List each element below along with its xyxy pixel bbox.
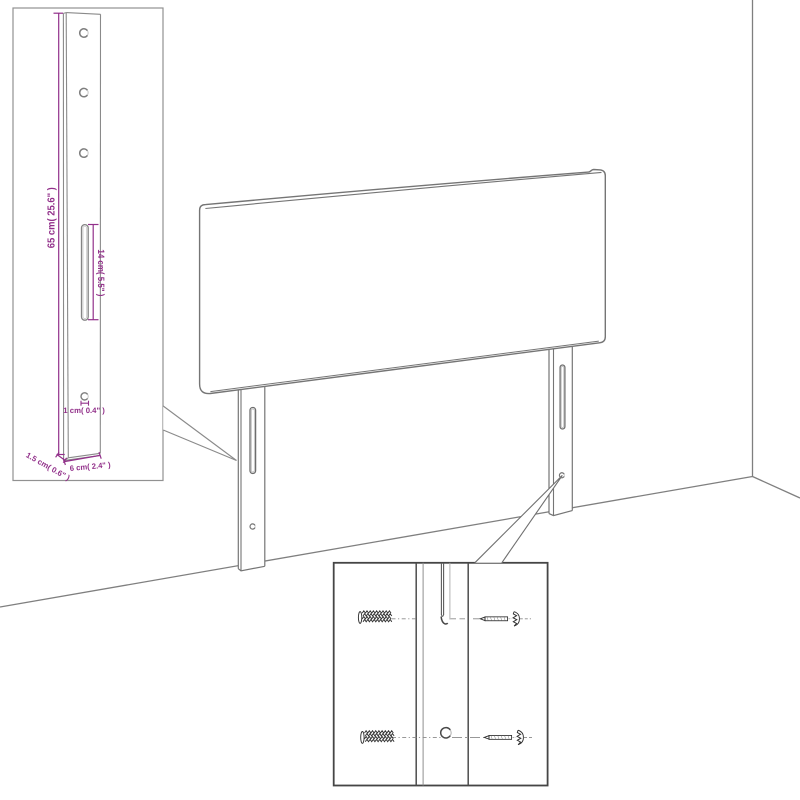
svg-text:14 cm( 5.5" ): 14 cm( 5.5" ) bbox=[96, 249, 106, 296]
svg-text:65 cm( 25.6" ): 65 cm( 25.6" ) bbox=[46, 187, 57, 248]
svg-text:1 cm( 0.4" ): 1 cm( 0.4" ) bbox=[63, 406, 105, 415]
